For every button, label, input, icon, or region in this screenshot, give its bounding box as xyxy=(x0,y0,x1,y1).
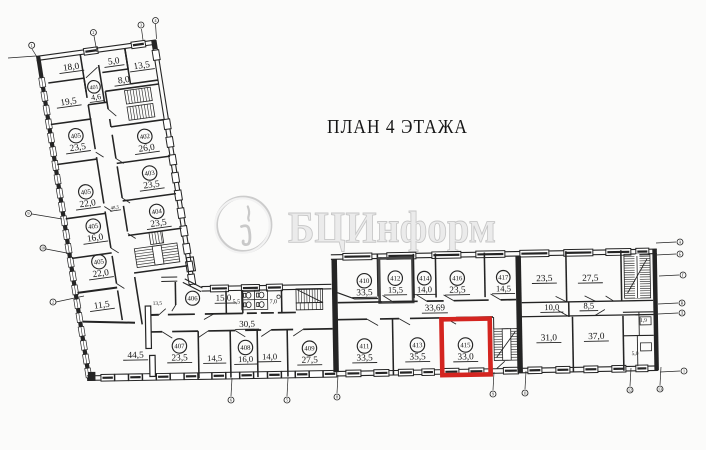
svg-text:412: 412 xyxy=(390,275,401,282)
svg-text:13,5: 13,5 xyxy=(153,301,163,307)
svg-text:23,5: 23,5 xyxy=(171,353,188,363)
svg-text:406: 406 xyxy=(187,295,198,302)
svg-text:411: 411 xyxy=(359,343,369,350)
svg-text:14,0: 14,0 xyxy=(262,351,277,361)
svg-text:Д: Д xyxy=(681,311,684,316)
svg-text:10,0: 10,0 xyxy=(544,302,559,312)
svg-text:15,5: 15,5 xyxy=(388,285,403,295)
svg-text:407: 407 xyxy=(174,343,185,350)
svg-text:ПЛАН 4 ЭТАЖА: ПЛАН 4 ЭТАЖА xyxy=(327,116,468,138)
svg-text:27,5: 27,5 xyxy=(582,274,599,284)
svg-text:44,5: 44,5 xyxy=(127,351,144,361)
svg-text:5,0: 5,0 xyxy=(632,351,639,357)
svg-text:416: 416 xyxy=(452,275,463,282)
svg-text:15,0: 15,0 xyxy=(215,293,231,303)
svg-text:410: 410 xyxy=(359,278,370,285)
svg-text:11: 11 xyxy=(523,391,527,396)
svg-text:4,6: 4,6 xyxy=(90,92,101,102)
svg-text:414: 414 xyxy=(419,275,430,282)
svg-text:1: 1 xyxy=(31,43,33,48)
svg-text:23,5: 23,5 xyxy=(449,285,466,295)
svg-text:33,69: 33,69 xyxy=(425,302,446,312)
svg-text:405: 405 xyxy=(70,132,82,140)
svg-text:В: В xyxy=(681,301,684,306)
svg-text:33,5: 33,5 xyxy=(356,353,373,363)
svg-text:12: 12 xyxy=(628,388,632,393)
svg-text:9: 9 xyxy=(28,211,30,216)
svg-text:408: 408 xyxy=(240,345,251,352)
svg-text:5: 5 xyxy=(286,398,288,403)
svg-text:8,5: 8,5 xyxy=(583,300,594,310)
svg-text:6: 6 xyxy=(230,398,232,403)
svg-text:35,5: 35,5 xyxy=(409,352,426,362)
svg-text:14,5: 14,5 xyxy=(496,283,511,293)
svg-text:417: 417 xyxy=(498,274,509,281)
svg-text:409: 409 xyxy=(304,345,315,352)
svg-text:2: 2 xyxy=(92,30,94,35)
svg-text:405: 405 xyxy=(80,188,92,196)
svg-text:401: 401 xyxy=(89,85,99,92)
svg-text:1,9: 1,9 xyxy=(640,318,647,324)
svg-text:23,5: 23,5 xyxy=(536,274,553,284)
svg-text:404: 404 xyxy=(151,208,163,216)
svg-text:413: 413 xyxy=(412,342,423,349)
svg-text:1: 1 xyxy=(683,369,685,374)
svg-text:405: 405 xyxy=(88,223,100,231)
svg-text:13: 13 xyxy=(658,387,662,392)
svg-text:402: 402 xyxy=(139,133,151,141)
svg-text:403: 403 xyxy=(144,170,156,178)
svg-text:2: 2 xyxy=(52,300,54,305)
svg-text:10: 10 xyxy=(41,246,45,251)
svg-text:16,0: 16,0 xyxy=(238,354,253,364)
svg-text:405: 405 xyxy=(93,258,105,266)
svg-text:А: А xyxy=(679,240,682,245)
svg-text:37,0: 37,0 xyxy=(588,332,605,342)
svg-text:3: 3 xyxy=(140,23,142,28)
svg-text:27,5: 27,5 xyxy=(301,356,318,366)
svg-text:14,5: 14,5 xyxy=(207,353,222,363)
svg-text:7,0: 7,0 xyxy=(270,299,278,305)
svg-text:415: 415 xyxy=(460,342,471,349)
svg-text:14,0: 14,0 xyxy=(417,284,432,294)
svg-text:4: 4 xyxy=(155,18,157,23)
svg-text:9: 9 xyxy=(492,392,494,397)
svg-text:31,0: 31,0 xyxy=(541,333,558,343)
svg-text:БЦИнформ: БЦИнформ xyxy=(288,203,496,252)
svg-text:30,5: 30,5 xyxy=(239,319,255,329)
svg-text:8: 8 xyxy=(336,395,338,400)
svg-text:33,0: 33,0 xyxy=(457,352,474,362)
svg-text:5,5: 5,5 xyxy=(233,299,241,305)
svg-text:33,5: 33,5 xyxy=(356,288,373,298)
